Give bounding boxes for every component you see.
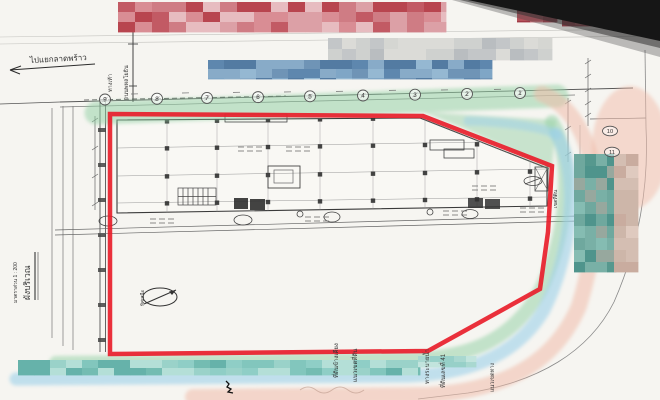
grid-bubble-label: 7 [205, 95, 209, 102]
parcel-edge-label: เขตที่ดิน [552, 189, 559, 208]
site-plan-drawing: 9876543211011 ทิศเหนือ ไปแยกลาดพร้าว ทาง… [0, 0, 660, 400]
grid-bubble-label: 10 [607, 129, 613, 135]
road-label: ถนนพหลโยธิน [122, 65, 130, 100]
grid-bubble-label: 3 [413, 92, 417, 99]
boundary-label: แนวเขตที่ดิน [351, 349, 359, 382]
north-label: ทิศเหนือ [139, 290, 145, 306]
grid-bubble-label: 2 [465, 91, 469, 98]
row-edge-label: แนวเขตทาง [490, 363, 496, 392]
grid-bubble-label: 9 [103, 97, 107, 104]
grid-bubble-label: 11 [609, 150, 615, 156]
grid-bubble-label: 6 [256, 94, 260, 101]
parcel-no-label: ที่ดินเลขที่ 41 [439, 353, 447, 388]
grid-bubble-label: 5 [308, 93, 312, 100]
scanned-site-plan: 9876543211011 ทิศเหนือ ไปแยกลาดพร้าว ทาง… [0, 0, 660, 400]
grid-bubble-label: 1 [518, 90, 522, 97]
sheet-title: ผังบริเวณ [22, 265, 32, 300]
adjacent-parcel-label: ที่ดินข้างเคียง [332, 343, 340, 378]
sidewalk-label: ทางเท้า [107, 74, 114, 92]
sheet-scale: มาตราส่วน 1 : 200 [13, 262, 19, 303]
grid-bubble-label: 4 [361, 93, 365, 100]
grid-bubble-label: 8 [155, 96, 159, 103]
